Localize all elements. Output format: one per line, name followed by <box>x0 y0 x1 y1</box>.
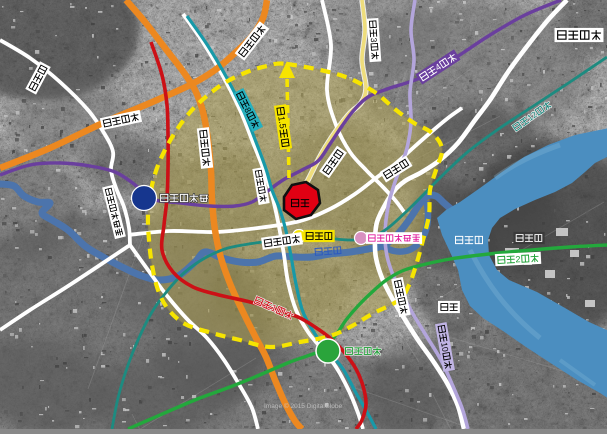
svg-text:1.5: 1.5 <box>276 115 288 129</box>
svg-text:2: 2 <box>515 254 521 264</box>
svg-text:3: 3 <box>369 37 379 43</box>
svg-text:10: 10 <box>439 341 451 352</box>
svg-text:Image © 2015 DigitalGlobe: Image © 2015 DigitalGlobe <box>264 402 343 410</box>
